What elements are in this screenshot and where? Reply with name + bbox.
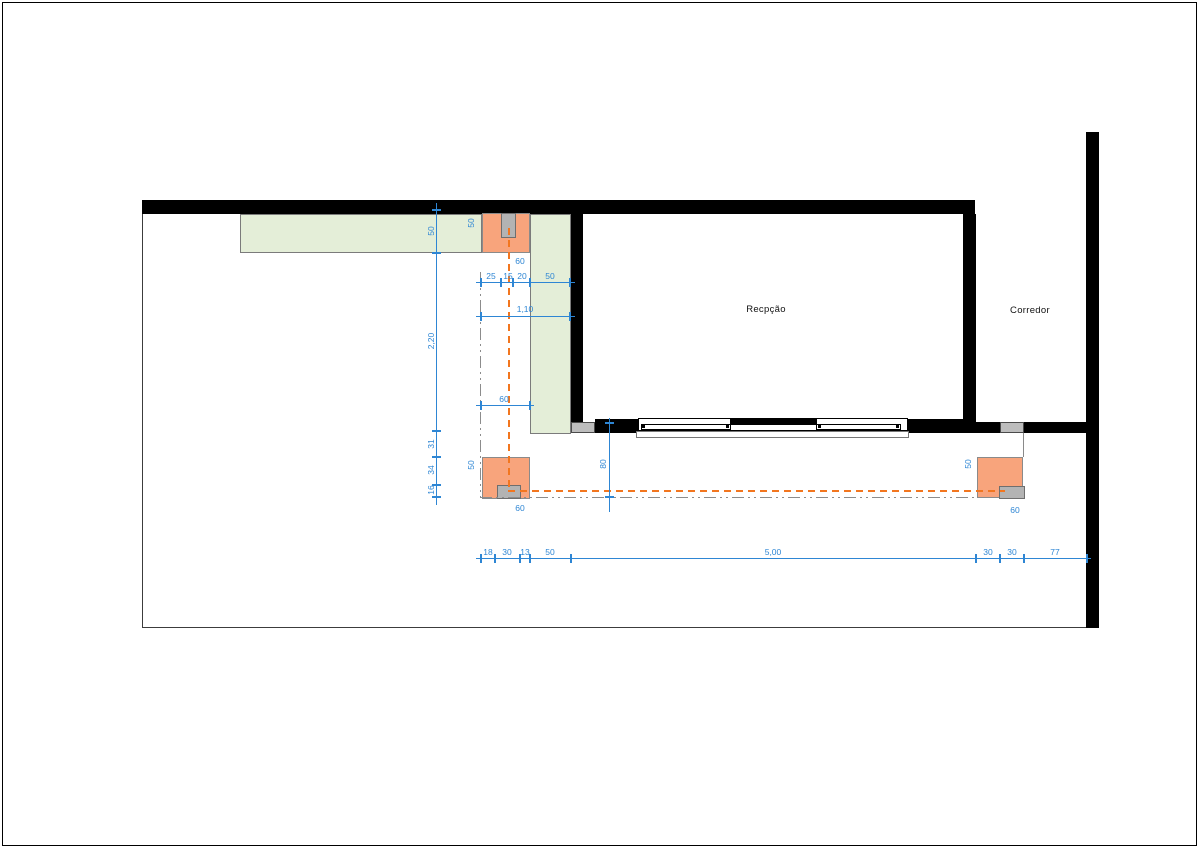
window-handle-icon xyxy=(896,425,899,428)
window-handle-icon xyxy=(726,425,729,428)
dim-line-upper-chain xyxy=(476,282,575,283)
wall-corridor-bottom-left xyxy=(975,422,1000,433)
phantom-line-vertical xyxy=(480,272,481,498)
centerline-horizontal xyxy=(508,490,1005,492)
dim-label: 50 xyxy=(466,445,476,485)
centerline-vertical xyxy=(508,228,510,492)
phantom-line-horizontal xyxy=(480,497,977,498)
dim-line-bottom-chain xyxy=(476,558,1091,559)
dim-label: 13 xyxy=(515,547,535,557)
dim-label: 30 xyxy=(1002,547,1022,557)
wall-reception-right xyxy=(963,214,976,433)
floor-plan-canvas: Recpção Corredor 50 2,20 31 34 16 50 60 … xyxy=(0,0,1200,849)
dim-label: 60 xyxy=(510,503,530,513)
dim-label: 60 xyxy=(1005,505,1025,515)
boundary-left-line xyxy=(142,214,143,627)
dim-label: 20 xyxy=(512,271,532,281)
column-bottom-right-notch xyxy=(999,486,1025,499)
window-handle-icon xyxy=(818,425,821,428)
dim-label: 77 xyxy=(1045,547,1065,557)
wall-box-right xyxy=(1000,422,1024,433)
dim-label: 1,10 xyxy=(511,304,539,314)
dim-label: 50 xyxy=(963,444,973,484)
dim-label: 50 xyxy=(426,211,436,251)
wall-corridor-bottom-right xyxy=(1024,422,1087,433)
dim-label: 5,00 xyxy=(758,547,788,557)
boundary-bottom-line xyxy=(142,627,1087,628)
room-label-corridor: Corredor xyxy=(980,305,1080,316)
dim-line-mid-60 xyxy=(476,405,534,406)
dim-label: 18 xyxy=(478,547,498,557)
wall-reception-left xyxy=(570,214,583,423)
window-sill xyxy=(636,431,909,438)
wall-top xyxy=(142,200,975,214)
window-leaf-left xyxy=(641,424,731,430)
green-band-vertical xyxy=(530,214,571,434)
window-leaf-right xyxy=(816,424,901,430)
dim-label: 50 xyxy=(540,547,560,557)
dim-line-80 xyxy=(609,418,610,512)
wall-bottom-seg-a xyxy=(595,419,639,433)
dim-label: 60 xyxy=(510,256,530,266)
dim-line-opening xyxy=(476,316,575,317)
window-handle-icon xyxy=(642,425,645,428)
dim-label: 60 xyxy=(494,394,514,404)
wall-box-left xyxy=(571,422,595,433)
column-connector-line xyxy=(1023,433,1024,457)
dim-label: 30 xyxy=(978,547,998,557)
dim-label: 50 xyxy=(540,271,560,281)
dim-label: 30 xyxy=(497,547,517,557)
dim-label: 16 xyxy=(426,470,436,510)
dim-label: 50 xyxy=(466,203,476,243)
dim-label: 80 xyxy=(598,444,608,484)
dim-label: 2,20 xyxy=(426,321,436,361)
green-band-horizontal xyxy=(240,214,482,253)
window-leaf-middle xyxy=(730,419,817,425)
wall-bottom-seg-b xyxy=(908,419,963,433)
dim-line-left-chain xyxy=(436,203,437,505)
room-label-reception: Recpção xyxy=(716,304,816,315)
